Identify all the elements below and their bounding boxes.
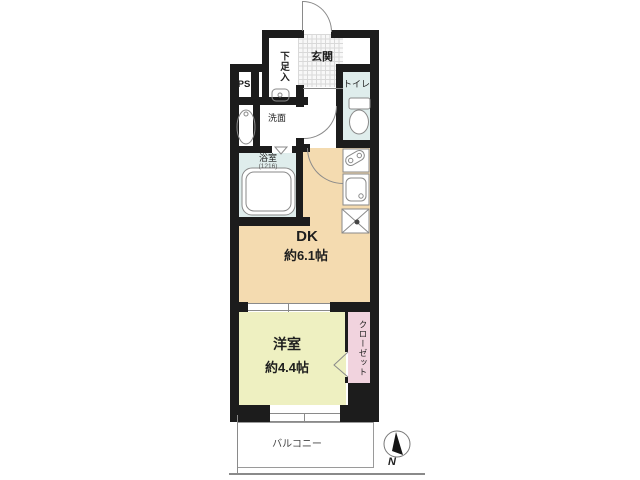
balcony-label: バルコニー [265, 439, 329, 451]
western-room-label: 洋室 [261, 336, 313, 352]
shoe-cupboard-label: 下足入 [270, 38, 288, 96]
floorplan-image: 玄関 下足入 PS 洗面 トイレ 浴室 (1216) DK 約6.1帖 洋室 約… [0, 0, 640, 480]
stove-counter-icon [343, 149, 369, 172]
closet-label: クローゼット [351, 315, 367, 381]
toilet-label: トイレ [343, 79, 370, 89]
compass-north-label: N [384, 456, 400, 469]
washing-machine-pan-icon [237, 110, 255, 144]
bathtub-icon [242, 168, 295, 215]
toilet-bowl-icon [350, 110, 369, 134]
kitchen-sink-counter-icon [343, 174, 369, 205]
dk-area-label: 約6.1帖 [277, 249, 335, 264]
refrigerator-mark [355, 220, 360, 225]
washing-machine-tap-icon [244, 112, 248, 116]
washroom-label: 洗面 [262, 113, 292, 123]
entrance-label: 玄関 [302, 51, 342, 64]
toilet-tank-icon [349, 98, 370, 109]
pipe-space-label: PS [234, 80, 254, 91]
bathroom-label: 浴室 [250, 153, 286, 163]
closet-door-icon [334, 352, 348, 377]
bathroom-size-label: (1216) [248, 163, 288, 170]
western-room-area-label: 約4.4帖 [257, 361, 317, 376]
dk-label: DK [281, 228, 333, 245]
